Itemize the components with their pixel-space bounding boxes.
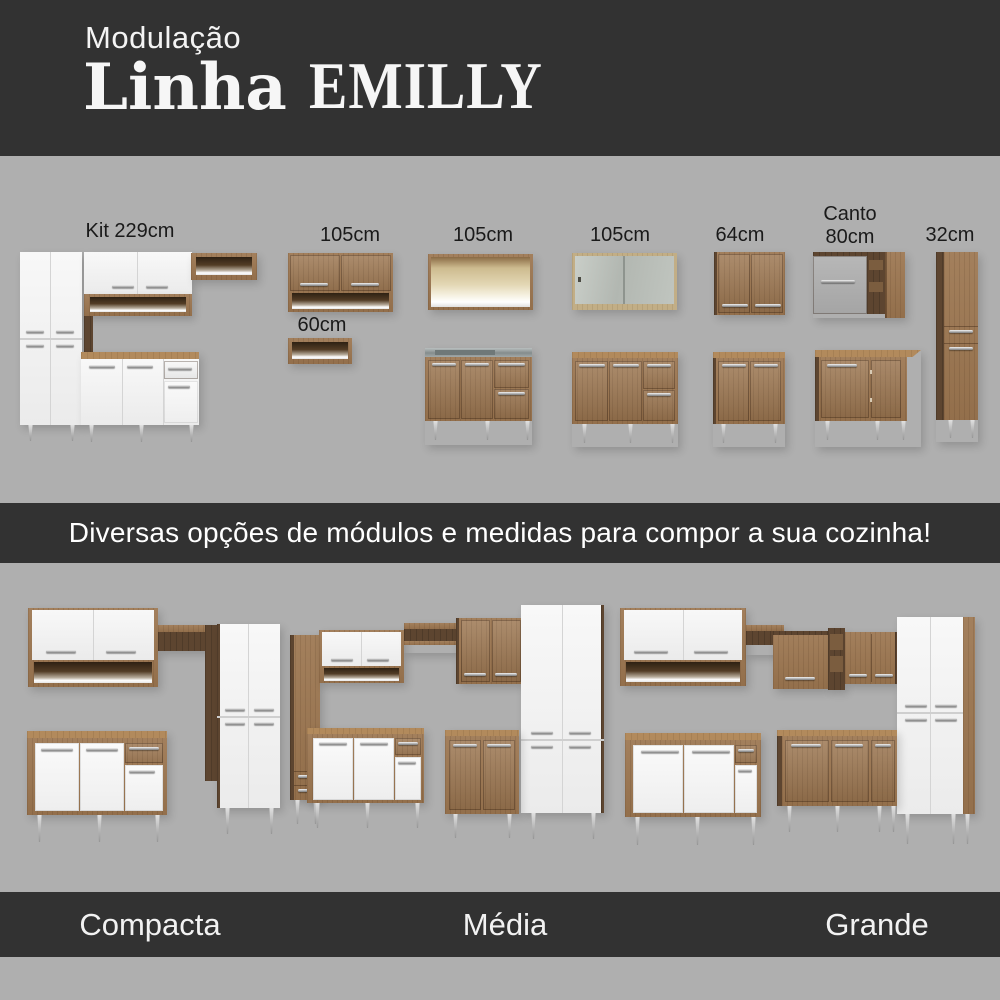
leg	[875, 421, 880, 440]
handle	[579, 364, 605, 367]
leg	[965, 814, 970, 844]
handle	[634, 650, 668, 653]
drawer	[164, 361, 198, 379]
leg	[721, 424, 726, 443]
grande-white-base-cabinet	[625, 733, 761, 817]
leg	[901, 421, 906, 440]
leg	[951, 814, 956, 844]
side-panel	[963, 617, 975, 814]
door-seam	[897, 712, 963, 714]
handle	[319, 742, 347, 745]
module-64-wall-cabinet	[714, 252, 785, 315]
label-canto-line2: 80cm	[800, 226, 900, 249]
kit-tall-cabinet	[20, 252, 82, 425]
compacta-pantry-cabinet	[217, 624, 280, 808]
countertop	[27, 731, 167, 738]
leg	[531, 813, 536, 839]
side-panel	[777, 736, 782, 806]
shelf-recess	[404, 629, 457, 641]
handle	[935, 704, 957, 707]
handle	[26, 344, 44, 347]
door-seam	[871, 634, 872, 682]
door	[821, 360, 869, 418]
title-emilly: EMILLY	[309, 47, 543, 125]
door	[483, 740, 515, 810]
handle	[89, 365, 115, 368]
module-105-sink-base	[425, 348, 532, 445]
drawer	[125, 743, 163, 763]
handle	[755, 304, 781, 307]
door	[575, 361, 608, 421]
handle	[254, 722, 274, 725]
door-seam	[122, 359, 123, 425]
handle	[367, 658, 389, 661]
door	[428, 360, 460, 419]
handle	[56, 344, 74, 347]
door-seam	[93, 610, 94, 660]
door	[313, 738, 353, 800]
handle	[949, 347, 973, 350]
side-panel	[601, 605, 604, 813]
shelf-niche	[869, 282, 883, 292]
leg	[433, 421, 438, 440]
label-105-glass: 105cm	[570, 224, 670, 247]
leg	[139, 425, 144, 442]
grande-wall-cabinet	[620, 608, 746, 686]
grande-brown-wall-cabinet	[845, 632, 897, 684]
module-corner-80-wall	[813, 252, 905, 318]
handle	[351, 283, 379, 286]
door	[609, 361, 642, 421]
drawer	[735, 745, 757, 763]
door-seam	[521, 739, 604, 741]
compacta-base-cabinet	[27, 731, 167, 815]
label-canto-80: Canto 80cm	[800, 203, 900, 249]
corner-wing-panel	[885, 252, 905, 318]
handle	[692, 750, 730, 753]
label-32: 32cm	[900, 224, 1000, 247]
grande-corner-wall-door	[773, 631, 828, 689]
shelf-plank	[404, 641, 457, 645]
footer-label-grande: Grande	[777, 907, 977, 943]
media-bridge-shelf	[404, 623, 457, 653]
label-105-niche: 105cm	[300, 224, 400, 247]
countertop	[625, 733, 761, 740]
handle	[905, 718, 927, 721]
door-seam	[20, 338, 82, 340]
handle	[827, 364, 857, 367]
banner-band: Diversas opções de módulos e medidas par…	[0, 503, 1000, 563]
countertop-wing	[815, 350, 921, 357]
door	[684, 745, 734, 813]
glass-divider	[623, 256, 625, 304]
handle	[86, 748, 118, 751]
handle	[56, 330, 74, 333]
leg	[635, 817, 640, 845]
module-corner-80-base	[815, 350, 921, 447]
side-panel	[456, 618, 459, 684]
door	[735, 765, 757, 813]
handle	[453, 744, 477, 747]
kit-wall-cabinet	[84, 252, 192, 294]
door-seam	[137, 252, 138, 294]
leg	[591, 813, 596, 839]
footer-label-compacta: Compacta	[50, 907, 250, 943]
handle	[835, 744, 863, 747]
leg	[89, 425, 94, 442]
handle	[225, 722, 245, 725]
page-title: Linha EMILLY	[83, 50, 569, 125]
leg	[365, 803, 370, 828]
door-seam	[217, 716, 280, 718]
handle	[432, 363, 456, 366]
side-panel	[290, 635, 294, 800]
niche	[324, 668, 399, 681]
poster: Modulação Linha EMILLY Kit 229cm 105cm 6…	[0, 0, 1000, 1000]
leg	[28, 425, 33, 441]
handle	[875, 674, 893, 677]
module-105-open-cabinet	[428, 254, 533, 310]
kit-top-open-box	[191, 253, 257, 280]
leg	[507, 814, 512, 838]
side-panel	[714, 252, 717, 315]
handle	[398, 742, 418, 745]
media-brown-base-cabinet	[445, 730, 519, 814]
handle	[694, 650, 728, 653]
label-64: 64cm	[690, 224, 790, 247]
door	[785, 740, 829, 802]
leg	[970, 420, 975, 438]
door-seam	[562, 605, 563, 813]
countertop	[81, 352, 199, 359]
handle	[647, 364, 671, 367]
door	[750, 361, 781, 421]
handle	[225, 708, 245, 711]
handle	[498, 392, 525, 395]
leg	[97, 815, 102, 842]
top-panel	[773, 631, 828, 635]
door-seam	[930, 617, 931, 814]
door-seam	[944, 326, 978, 327]
leg	[525, 421, 530, 440]
label-canto-line1: Canto	[800, 203, 900, 226]
compacta-support-column	[205, 625, 217, 781]
leg	[695, 817, 700, 845]
leg	[415, 803, 420, 828]
leg	[582, 424, 587, 443]
header-band: Modulação Linha EMILLY	[0, 0, 1000, 156]
handle	[722, 364, 746, 367]
side-panel	[713, 358, 716, 424]
leg	[70, 425, 75, 441]
leg	[670, 424, 675, 443]
shelf-niche	[869, 260, 883, 270]
leg	[905, 814, 910, 844]
niche	[292, 293, 389, 309]
open-interior	[431, 257, 530, 307]
hinge	[870, 398, 872, 402]
door	[831, 740, 869, 802]
leg	[485, 421, 490, 440]
drawer	[395, 738, 421, 755]
handle	[360, 742, 388, 745]
handle	[129, 770, 155, 773]
niche	[292, 342, 348, 359]
handle	[738, 749, 754, 752]
handle	[129, 747, 159, 750]
handle	[569, 745, 591, 748]
handle	[495, 673, 517, 676]
leg	[453, 814, 458, 838]
handle	[738, 769, 752, 772]
handle	[849, 674, 867, 677]
leg	[948, 420, 953, 438]
leg	[891, 806, 896, 832]
media-pantry-cabinet	[521, 605, 604, 813]
kit-support-panel	[84, 316, 93, 354]
leg	[225, 808, 230, 834]
handle	[168, 367, 192, 370]
kit-base-cabinet	[81, 352, 199, 425]
handle	[254, 708, 274, 711]
leg	[751, 817, 756, 845]
module-60-open-box	[288, 338, 352, 364]
handle	[398, 761, 416, 764]
door	[633, 745, 683, 813]
handle	[465, 363, 489, 366]
leg	[825, 421, 830, 440]
handle	[647, 393, 671, 396]
kit-open-shelf	[84, 294, 192, 316]
handle	[300, 283, 328, 286]
door	[449, 740, 481, 810]
leg	[628, 424, 633, 443]
handle	[331, 658, 353, 661]
handle	[168, 385, 190, 388]
module-64-base-cabinet	[713, 352, 785, 447]
handle	[531, 745, 553, 748]
handle	[613, 364, 639, 367]
leg	[787, 806, 792, 832]
corner-door	[871, 740, 895, 802]
leg	[155, 815, 160, 842]
handle	[464, 673, 486, 676]
niche	[196, 257, 252, 275]
title-linha: Linha	[83, 50, 287, 125]
handle	[531, 731, 553, 734]
handle	[112, 285, 134, 288]
leg	[269, 808, 274, 834]
handle	[791, 744, 821, 747]
door	[461, 360, 493, 419]
grande-pantry-cabinet	[897, 617, 975, 814]
niche	[34, 662, 152, 683]
leg	[189, 425, 194, 442]
handle	[26, 330, 44, 333]
handle	[785, 677, 815, 680]
module-105-wall-niche	[288, 253, 393, 312]
label-105-open: 105cm	[433, 224, 533, 247]
media-wall-cabinet	[319, 630, 404, 683]
media-white-base-cabinet	[307, 728, 424, 803]
sink-bowl	[435, 350, 495, 355]
shelf-niche	[830, 634, 843, 650]
door-seam	[683, 610, 684, 660]
compacta-wall-cabinet	[28, 608, 158, 687]
handle	[146, 285, 168, 288]
door	[35, 743, 79, 811]
footer-label-media: Média	[405, 907, 605, 943]
door	[718, 361, 749, 421]
corner-door	[871, 360, 901, 418]
door	[80, 743, 124, 811]
side-panel	[936, 252, 944, 420]
handle	[875, 744, 891, 747]
niche	[90, 297, 186, 312]
leg	[37, 815, 42, 842]
hinge	[870, 370, 872, 374]
cabinet-body	[944, 252, 978, 420]
handle	[106, 650, 136, 653]
grande-corner-open-shelves	[828, 628, 845, 690]
media-brown-wall-cabinet	[456, 618, 522, 684]
niche	[626, 662, 740, 682]
handle	[641, 750, 679, 753]
handle	[821, 280, 855, 283]
handle	[569, 731, 591, 734]
label-60: 60cm	[272, 314, 372, 337]
footer-band: Compacta Média Grande	[0, 892, 1000, 957]
handle	[722, 304, 748, 307]
leg	[295, 800, 300, 824]
handle	[46, 650, 76, 653]
module-32-tall-cabinet	[936, 252, 978, 442]
leg	[773, 424, 778, 443]
handle	[935, 718, 957, 721]
door-seam	[361, 632, 362, 666]
handle	[949, 330, 973, 333]
leg	[877, 806, 882, 832]
panel-seam	[885, 252, 887, 318]
handle	[127, 365, 153, 368]
shelf-niche	[830, 656, 843, 672]
leg	[835, 806, 840, 832]
side-panel	[815, 357, 819, 421]
handle	[905, 704, 927, 707]
label-kit-229: Kit 229cm	[55, 220, 205, 243]
handle	[41, 748, 73, 751]
door	[354, 738, 394, 800]
handle	[498, 363, 525, 366]
grande-corner-base-cabinet	[777, 730, 897, 806]
door-seam	[944, 343, 978, 344]
handle	[487, 744, 511, 747]
banner-text: Diversas opções de módulos e medidas par…	[0, 503, 1000, 563]
handle	[754, 364, 778, 367]
module-105-base-cabinet	[572, 352, 678, 447]
glass-lock	[578, 277, 581, 282]
module-105-glass-cabinet	[572, 253, 677, 310]
door	[813, 256, 867, 314]
